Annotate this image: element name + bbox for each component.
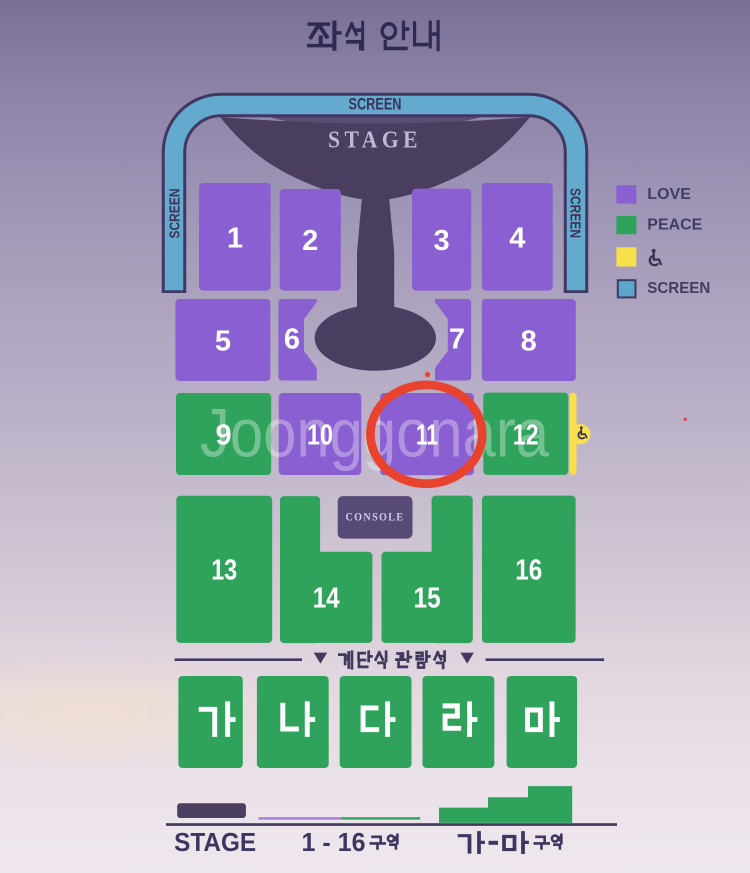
svg-text:15: 15 bbox=[414, 582, 441, 614]
svg-text:11: 11 bbox=[416, 419, 438, 451]
svg-text:CONSOLE: CONSOLE bbox=[346, 512, 405, 524]
svg-text:1 - 16: 1 - 16 bbox=[302, 829, 366, 857]
svg-text:SCREEN: SCREEN bbox=[647, 280, 710, 297]
svg-text:SCREEN: SCREEN bbox=[567, 188, 584, 238]
svg-text:STAGE: STAGE bbox=[328, 128, 422, 154]
svg-text:4: 4 bbox=[509, 222, 525, 254]
svg-text:LOVE: LOVE bbox=[647, 186, 691, 203]
svg-text:12: 12 bbox=[513, 419, 539, 451]
svg-text:SCREEN: SCREEN bbox=[349, 95, 402, 114]
svg-text:6: 6 bbox=[284, 323, 300, 355]
svg-text:1: 1 bbox=[227, 222, 243, 254]
svg-text:10: 10 bbox=[307, 419, 333, 451]
svg-text:PEACE: PEACE bbox=[647, 217, 702, 234]
svg-text:14: 14 bbox=[313, 582, 340, 614]
svg-text:8: 8 bbox=[521, 325, 537, 357]
svg-text:9: 9 bbox=[216, 419, 232, 451]
svg-text:SCREEN: SCREEN bbox=[167, 189, 184, 239]
svg-text:16: 16 bbox=[515, 555, 542, 587]
svg-text:13: 13 bbox=[211, 555, 237, 587]
svg-text:3: 3 bbox=[434, 225, 450, 257]
svg-text:5: 5 bbox=[215, 325, 231, 357]
svg-text:STAGE: STAGE bbox=[174, 829, 256, 857]
svg-text:2: 2 bbox=[302, 225, 318, 257]
svg-text:7: 7 bbox=[449, 323, 465, 355]
